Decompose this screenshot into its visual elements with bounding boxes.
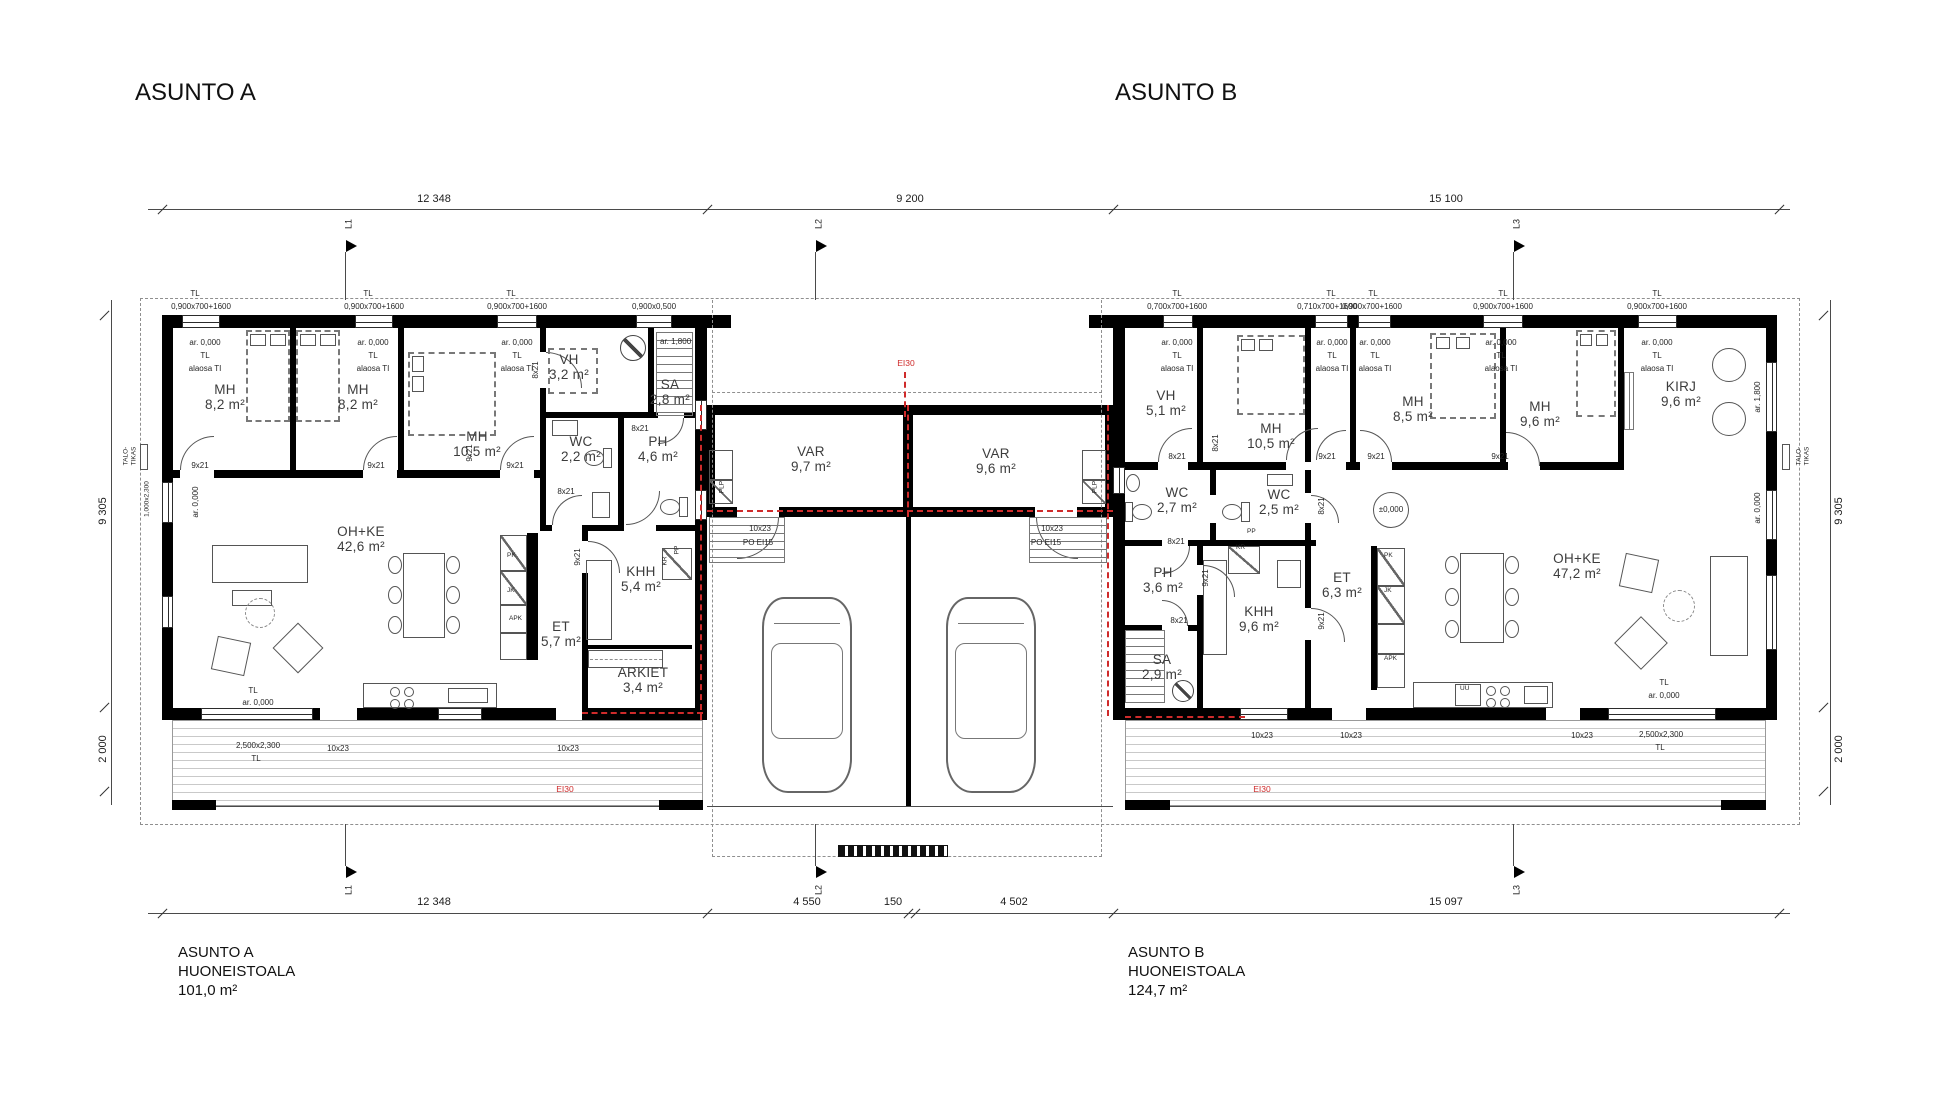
dining-chair — [446, 586, 460, 604]
sink — [1524, 686, 1548, 704]
room-area: 9,7 m² — [791, 460, 831, 474]
dimension-label: 2 000 — [98, 735, 110, 763]
wall — [618, 418, 624, 530]
fire-rating-line — [904, 372, 906, 417]
annotation: TL — [1659, 679, 1668, 687]
annotation: TL — [512, 352, 521, 360]
annotation: 9x21 — [367, 462, 384, 470]
annotation: TL — [1327, 352, 1336, 360]
room-name: MH — [466, 430, 488, 444]
wall-opening — [1360, 462, 1392, 470]
dining-chair — [388, 616, 402, 634]
wall-opening — [1158, 462, 1188, 470]
room-name: VH — [1156, 389, 1175, 403]
window — [636, 315, 672, 328]
wall-opening — [1332, 708, 1366, 720]
window — [1608, 708, 1716, 720]
annotation: TL — [190, 290, 199, 298]
annotation: TALO- — [1797, 447, 1804, 466]
annotation: PO EI15 — [743, 539, 773, 547]
room-name: ET — [552, 620, 570, 634]
room-area: 8,2 m² — [338, 398, 378, 412]
door-arc — [626, 491, 660, 525]
door-arc — [1506, 432, 1540, 466]
roofline-dash — [140, 298, 1800, 299]
room-name: OH+KE — [337, 525, 385, 539]
deck-edge-block — [659, 800, 703, 810]
fire-rating-line — [907, 405, 909, 517]
stove-burner — [404, 699, 414, 709]
footer-a-title: ASUNTO A — [178, 945, 254, 961]
dimension-line — [815, 824, 816, 866]
annotation: PK — [1384, 553, 1393, 560]
annotation: 8x21 — [557, 488, 574, 496]
dining-chair — [388, 586, 402, 604]
dimension-label: 150 — [884, 897, 902, 909]
wall-opening — [320, 708, 357, 720]
footer-b-title: ASUNTO B — [1128, 945, 1204, 961]
room-area: 9,6 m² — [1520, 415, 1560, 429]
annotation: 9x21 — [466, 444, 474, 461]
room-name: WC — [1267, 488, 1290, 502]
footer-a-area-value: 101,0 m² — [178, 983, 237, 999]
annotation: alaosa TI — [1359, 365, 1392, 373]
annotation: 9x21 — [1491, 453, 1508, 461]
car — [946, 597, 1036, 793]
roofline-dash — [712, 392, 1102, 393]
window — [162, 482, 173, 523]
wall-opening — [737, 507, 779, 517]
dining-chair — [1505, 620, 1519, 638]
dimension-line — [1125, 806, 1766, 807]
wall-opening — [1210, 495, 1216, 523]
roofline-dash — [712, 300, 713, 857]
fire-rating-line — [1107, 405, 1109, 716]
axis-marker — [1514, 240, 1525, 252]
pillow — [320, 334, 336, 346]
fire-rating-line — [707, 510, 1113, 512]
dimension-label: L1 — [344, 885, 353, 895]
wall-opening — [363, 470, 397, 478]
annotation: 9x21 — [1202, 569, 1210, 586]
dimension-line — [1513, 824, 1514, 866]
annotation: ar. 1,800 — [660, 338, 691, 346]
annotation: JK — [507, 588, 515, 595]
dimension-line — [345, 252, 346, 300]
toilet-bowl — [1132, 504, 1152, 520]
window — [1240, 708, 1288, 720]
dimension-line — [1830, 300, 1831, 805]
annotation: ar. 0,000 — [192, 486, 200, 517]
window — [1113, 467, 1125, 494]
room-area: 4,6 m² — [638, 450, 678, 464]
axis-marker — [346, 240, 357, 252]
window — [1483, 315, 1523, 328]
window — [1163, 315, 1193, 328]
wall — [1350, 328, 1356, 470]
armchair — [273, 623, 324, 674]
annotation: 9x21 — [506, 462, 523, 470]
apartment-a-title: ASUNTO A — [135, 80, 256, 105]
rug — [245, 598, 275, 628]
annotation: 9x21 — [1367, 453, 1384, 461]
annotation: ar. 0,000 — [1648, 692, 1679, 700]
stove-burner — [1500, 686, 1510, 696]
annotation: ar. 0,000 — [357, 339, 388, 347]
annotation: alaosa TI — [189, 365, 222, 373]
annotation: KR — [663, 556, 670, 565]
dimension-tick — [1819, 787, 1829, 797]
room-name: MH — [214, 383, 236, 397]
dimension-tick — [100, 311, 110, 321]
pillow — [412, 356, 424, 372]
room-area: 10,5 m² — [1247, 437, 1295, 451]
annotation: TIKAS — [132, 447, 139, 466]
annotation: 9x21 — [574, 548, 582, 565]
room-area: 3,6 m² — [1143, 581, 1183, 595]
toilet-tank — [679, 497, 688, 517]
stove-burner — [390, 699, 400, 709]
sauna-stove — [1172, 680, 1194, 702]
annotation: ar. 0,000 — [1641, 339, 1672, 347]
room-area: 3,4 m² — [623, 681, 663, 695]
axis-marker — [816, 866, 827, 878]
pillow — [270, 334, 286, 346]
annotation: TIKAS — [1805, 447, 1812, 466]
footer-b-area-value: 124,7 m² — [1128, 983, 1187, 999]
wall-opening — [1316, 462, 1346, 470]
window — [497, 315, 537, 328]
annotation: KR — [1236, 545, 1245, 552]
room-name: KHH — [1244, 605, 1273, 619]
wall — [527, 533, 538, 660]
pillow — [1241, 339, 1255, 351]
lounge-chair — [1712, 348, 1746, 382]
dining-chair — [446, 556, 460, 574]
dimension-line — [111, 300, 112, 805]
dining-table — [403, 553, 445, 638]
window — [201, 708, 313, 720]
room-area: 47,2 m² — [1553, 567, 1601, 581]
washbasin — [592, 492, 610, 518]
window — [182, 315, 220, 328]
room-area: 2,9 m² — [1142, 668, 1182, 682]
annotation: 0,900x0,500 — [632, 303, 676, 311]
annotation: ±0,000 — [1379, 506, 1403, 514]
annotation: alaosa TI — [501, 365, 534, 373]
room-name: OH+KE — [1553, 552, 1601, 566]
room-area: 9,6 m² — [1239, 620, 1279, 634]
pillow — [250, 334, 266, 346]
room-name: SA — [661, 378, 680, 392]
annotation: TL — [1655, 744, 1664, 752]
dimension-label: L2 — [814, 219, 823, 229]
dimension-line — [1513, 252, 1514, 300]
room-area: 5,7 m² — [541, 635, 581, 649]
annotation: TALO- — [124, 447, 131, 466]
drain-grille — [838, 845, 948, 857]
roofline-dash — [1799, 298, 1800, 825]
stove-burner — [390, 687, 400, 697]
dining-table — [1460, 553, 1504, 643]
room-area: 2,7 m² — [1157, 501, 1197, 515]
lounge-chair — [1712, 402, 1746, 436]
armchair — [1619, 553, 1659, 593]
dimension-tick — [100, 787, 110, 797]
room-name: MH — [1402, 395, 1424, 409]
room-area: 9,6 m² — [976, 462, 1016, 476]
annotation: alaosa TI — [1641, 365, 1674, 373]
ladder-bracket — [140, 444, 148, 470]
annotation: TL — [363, 290, 372, 298]
bookshelf — [1624, 372, 1634, 430]
annotation: 10x23 — [1041, 525, 1063, 533]
rug — [1663, 590, 1695, 622]
dimension-label: 4 502 — [1000, 897, 1028, 909]
cabinet — [1377, 624, 1405, 654]
dimension-tick — [1819, 703, 1829, 713]
annotation: alaosa TI — [1485, 365, 1518, 373]
annotation: APK — [1384, 656, 1397, 663]
window — [162, 596, 173, 628]
wall-opening — [624, 525, 656, 531]
stove-burner — [1500, 698, 1510, 708]
window — [1766, 490, 1777, 540]
dimension-label: 15 097 — [1429, 897, 1463, 909]
dimension-label: 9 200 — [896, 194, 924, 206]
annotation: 9x21 — [1318, 612, 1326, 629]
room-area: 8,5 m² — [1393, 410, 1433, 424]
dimension-line — [148, 209, 1790, 210]
window — [438, 708, 482, 720]
dimension-label: 9 305 — [1834, 497, 1846, 525]
annotation: 0,900x700+1600 — [171, 303, 231, 311]
room-name: PH — [648, 435, 667, 449]
room-name: MH — [347, 383, 369, 397]
wall-opening — [500, 470, 534, 478]
room-name: KHH — [626, 565, 655, 579]
room-area: 10,5 m² — [453, 445, 501, 459]
annotation: TL — [1652, 352, 1661, 360]
apartment-b-title: ASUNTO B — [1115, 80, 1237, 105]
toilet-bowl — [1222, 504, 1242, 520]
annotation: 10x23 — [1571, 732, 1593, 740]
deck-edge-block — [172, 800, 216, 810]
window — [1358, 315, 1391, 328]
toilet-tank — [603, 448, 612, 468]
dimension-line — [172, 806, 703, 807]
toilet-tank — [1125, 502, 1133, 522]
dining-chair — [1505, 556, 1519, 574]
pillow — [1436, 337, 1450, 349]
door-arc — [552, 495, 582, 525]
annotation: JK — [1384, 588, 1392, 595]
toilet-tank — [1241, 502, 1250, 522]
window — [355, 315, 393, 328]
pillow — [412, 376, 424, 392]
armchair — [1614, 616, 1668, 670]
dining-chair — [1505, 588, 1519, 606]
annotation: 2,500x2,300 — [236, 742, 280, 750]
stove-burner — [1486, 698, 1496, 708]
annotation: PK — [507, 553, 516, 560]
annotation: 0,900x700+1600 — [1473, 303, 1533, 311]
fire-rating-line — [700, 405, 702, 720]
wall — [582, 645, 692, 649]
annotation: TL — [1326, 290, 1335, 298]
roofline-dash — [140, 298, 141, 825]
room-name: KIRJ — [1666, 380, 1696, 394]
annotation: 0,700x700+1600 — [1147, 303, 1207, 311]
wall-opening — [1286, 462, 1318, 470]
roofline-dash — [1101, 300, 1102, 857]
annotation: 10x23 — [1251, 732, 1273, 740]
pillow — [1456, 337, 1470, 349]
room-name: WC — [569, 435, 592, 449]
annotation: 10x23 — [557, 745, 579, 753]
wall — [1113, 315, 1777, 328]
fire-rating-line — [582, 712, 703, 714]
dining-chair — [388, 556, 402, 574]
annotation: 8x21 — [1167, 538, 1184, 546]
dimension-label: 12 348 — [417, 897, 451, 909]
room-name: ET — [1333, 571, 1351, 585]
dimension-label: 4 550 — [793, 897, 821, 909]
annotation: PLP — [720, 481, 727, 493]
washbasin — [1267, 474, 1293, 486]
annotation: TL — [1496, 352, 1505, 360]
dining-chair — [1445, 620, 1459, 638]
deck-edge-block — [1125, 800, 1170, 810]
floor-plan-drawing: ASUNTO A ASUNTO B ASUNTO A HUONEISTOALA … — [0, 0, 1950, 1100]
wall — [906, 517, 911, 807]
wall — [1113, 315, 1125, 720]
annotation: 8x21 — [631, 425, 648, 433]
wall — [707, 315, 731, 328]
wall — [1125, 540, 1316, 546]
annotation: TL — [200, 352, 209, 360]
footer-b-area-label: HUONEISTOALA — [1128, 964, 1245, 980]
annotation: alaosa TI — [1161, 365, 1194, 373]
sink — [448, 688, 488, 703]
sofa — [1710, 556, 1748, 656]
wall-opening — [1546, 708, 1580, 720]
annotation: 1,000x2,300 — [145, 481, 152, 517]
dimension-line — [345, 824, 346, 866]
annotation: ar. 0,000 — [1754, 492, 1762, 523]
annotation: TL — [368, 352, 377, 360]
wall-opening — [552, 525, 582, 531]
annotation: ar. 0,000 — [1161, 339, 1192, 347]
wall — [1197, 328, 1203, 470]
room-area: 6,3 m² — [1322, 586, 1362, 600]
sauna-stove — [620, 335, 646, 361]
annotation: TL — [1498, 290, 1507, 298]
annotation: 2,500x2,300 — [1639, 731, 1683, 739]
room-area: 5,4 m² — [621, 580, 661, 594]
dimension-line — [815, 252, 816, 300]
annotation: 8x21 — [1318, 497, 1326, 514]
annotation: 8x21 — [1170, 617, 1187, 625]
storage-box — [709, 450, 733, 480]
room-name: PH — [1153, 566, 1172, 580]
annotation: 9x21 — [191, 462, 208, 470]
window — [1638, 315, 1677, 328]
dining-chair — [446, 616, 460, 634]
deck-edge-block — [1721, 800, 1766, 810]
stove-burner — [404, 687, 414, 697]
axis-marker — [1514, 866, 1525, 878]
dining-chair — [1445, 556, 1459, 574]
utility-cabinet — [586, 560, 612, 640]
annotation: 9x21 — [1318, 453, 1335, 461]
annotation: ar. 0,000 — [242, 699, 273, 707]
footer-a-area-label: HUONEISTOALA — [178, 964, 295, 980]
annotation: APK — [509, 616, 522, 623]
room-area: 2,5 m² — [1259, 503, 1299, 517]
room-area: 42,6 m² — [337, 540, 385, 554]
annotation: PP — [675, 546, 682, 555]
pillow — [1596, 334, 1608, 346]
room-name: VAR — [797, 445, 825, 459]
room-name: SA — [1153, 653, 1172, 667]
annotation: TL — [1172, 352, 1181, 360]
annotation: TL — [251, 755, 260, 763]
dimension-line — [148, 913, 1790, 914]
annotation: 8x21 — [1168, 453, 1185, 461]
pillow — [300, 334, 316, 346]
wall-opening — [180, 470, 214, 478]
annotation: 0,900x700+1600 — [1342, 303, 1402, 311]
dimension-tick — [1819, 311, 1829, 321]
room-name: WC — [1165, 486, 1188, 500]
annotation: TL — [1368, 290, 1377, 298]
dimension-line — [707, 806, 1113, 807]
dimension-label: L3 — [1512, 885, 1521, 895]
dimension-label: 15 100 — [1429, 194, 1463, 206]
annotation: EI30 — [556, 785, 574, 794]
annotation: PP — [1247, 529, 1256, 536]
room-name: VH — [559, 353, 578, 367]
axis-marker — [816, 240, 827, 252]
room-area: 8,2 m² — [205, 398, 245, 412]
dimension-label: 9 305 — [98, 497, 110, 525]
cabinet — [500, 633, 527, 660]
wall — [398, 328, 404, 475]
room-area: 3,2 m² — [549, 368, 589, 382]
room-area: 2,8 m² — [650, 393, 690, 407]
roofline-dash — [140, 824, 1800, 825]
annotation: 0,900x700+1600 — [487, 303, 547, 311]
annotation: 8x21 — [532, 361, 540, 378]
dimension-label: 2 000 — [1834, 735, 1846, 763]
fire-rating-line — [1125, 716, 1245, 718]
dimension-label: L1 — [344, 219, 353, 229]
annotation: ar. 0,000 — [501, 339, 532, 347]
annotation: alaosa TI — [1316, 365, 1349, 373]
annotation: 0,900x700+1600 — [344, 303, 404, 311]
stove-burner — [1486, 686, 1496, 696]
dimension-label: 12 348 — [417, 194, 451, 206]
annotation: alaosa TI — [357, 365, 390, 373]
room-area: 9,6 m² — [1661, 395, 1701, 409]
pillow — [1259, 339, 1273, 351]
dimension-tick — [100, 703, 110, 713]
dimension-label: L2 — [814, 885, 823, 895]
storage-box — [1082, 450, 1106, 480]
annotation: TL — [1370, 352, 1379, 360]
annotation: PO EI15 — [1031, 539, 1061, 547]
